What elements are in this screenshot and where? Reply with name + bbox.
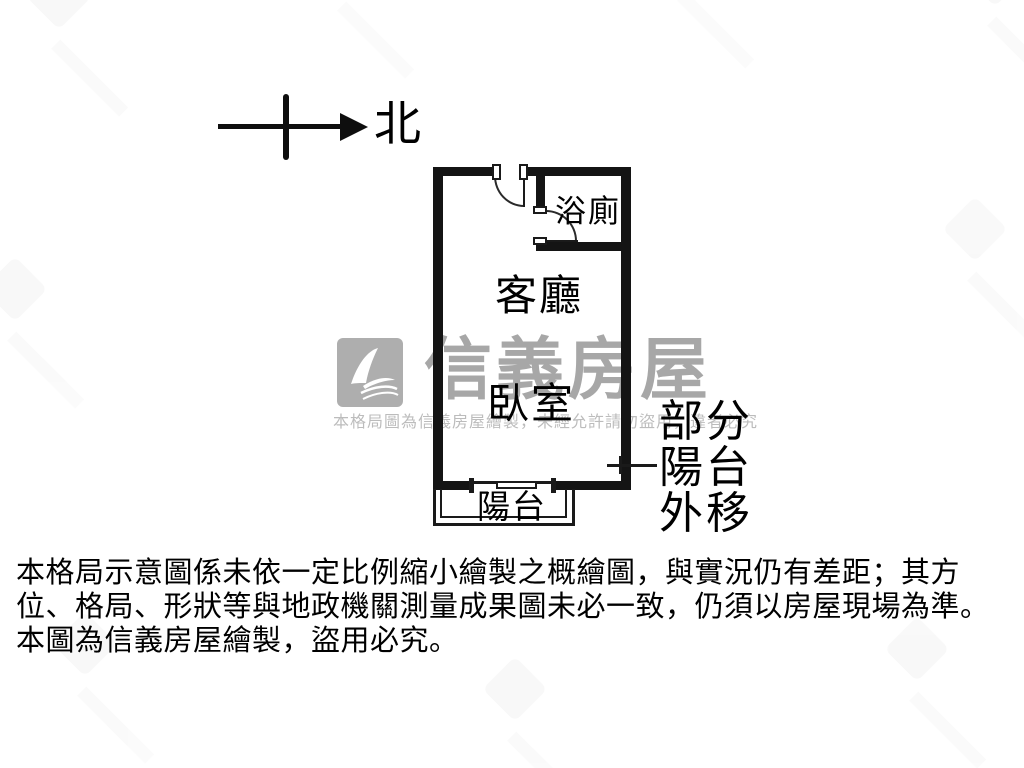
room-label-bathroom: 浴廁 — [555, 196, 621, 228]
background-watermark-tile — [949, 0, 1024, 94]
background-watermark-tile — [0, 256, 121, 408]
room-label-living-room: 客廳 — [495, 275, 583, 319]
entry-door-leaf — [523, 176, 525, 207]
annotation-line: 外移 — [659, 491, 753, 537]
north-arrow-crossbar — [283, 94, 289, 160]
wall-right — [621, 167, 631, 490]
annotation-line: 陽台 — [659, 445, 753, 491]
annotation-leader-line — [607, 464, 657, 467]
room-label-balcony: 陽台 — [477, 491, 547, 525]
entry-door-jamb-right — [519, 164, 528, 180]
bathroom-door-leaf — [545, 240, 578, 242]
wall-left — [433, 167, 443, 490]
balcony-annotation: 部分 陽台 外移 — [659, 399, 753, 537]
disclaimer-text: 本格局示意圖係未依一定比例縮小繪製之概繪圖，與實況仍有差距；其方 位、格局、形狀… — [16, 556, 1012, 658]
background-watermark-tile — [469, 656, 621, 768]
bathroom-door-jamb-top — [533, 206, 547, 214]
north-arrow-shaft — [218, 124, 341, 129]
sliding-door-panel — [496, 481, 537, 489]
disclaimer-line: 本格局示意圖係未依一定比例縮小繪製之概繪圖，與實況仍有差距；其方 — [16, 556, 1012, 590]
entry-door-jamb-left — [492, 164, 501, 180]
north-label: 北 — [374, 101, 421, 149]
background-watermark-tile — [299, 0, 451, 79]
disclaimer-line: 本圖為信義房屋繪製，盜用必究。 — [16, 624, 1012, 658]
disclaimer-line: 位、格局、形狀等與地政機關測量成果圖未必一致，仍須以房屋現場為準。 — [16, 590, 1012, 624]
background-watermark-tile — [13, 0, 165, 117]
room-label-bedroom: 臥室 — [487, 383, 575, 427]
entry-door-swing-arc — [494, 176, 524, 207]
bathroom-door-jamb-bottom — [533, 237, 547, 245]
floorplan-page: 信義房屋 本格局圖為信義房屋繪製，未經允許請勿盜用，違者必究 北 浴廁 客廳 臥… — [0, 0, 1024, 768]
wall-bathroom-bottom — [536, 242, 631, 251]
north-arrow-head-icon — [340, 113, 368, 141]
wall-top-left-segment — [433, 167, 495, 176]
background-watermark-tile — [639, 0, 791, 69]
annotation-leader-tick — [619, 456, 622, 474]
background-watermark-tile — [929, 196, 1024, 348]
bird-swoosh-icon — [337, 338, 403, 407]
annotation-line: 部分 — [659, 399, 753, 445]
sinyi-logo-icon — [337, 338, 403, 407]
